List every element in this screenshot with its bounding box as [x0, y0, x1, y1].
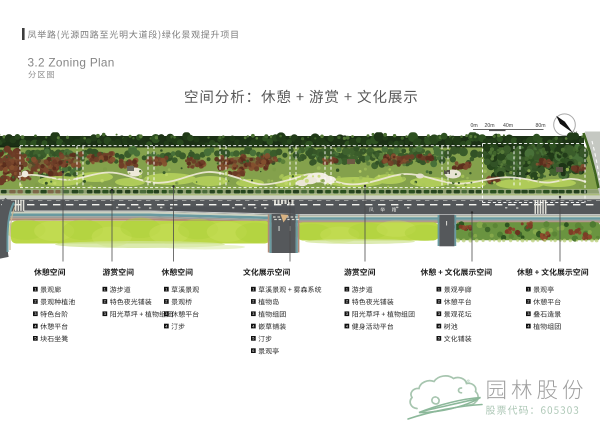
svg-text:3: 3 [346, 312, 348, 316]
svg-text:3: 3 [438, 312, 440, 316]
svg-text:2: 2 [438, 300, 440, 304]
svg-text:3: 3 [527, 312, 529, 316]
svg-text:3: 3 [252, 312, 254, 316]
svg-text:1: 1 [438, 287, 440, 291]
svg-text:3: 3 [165, 312, 167, 316]
svg-text:40m: 40m [503, 123, 513, 129]
svg-text:1: 1 [165, 287, 167, 291]
svg-text:20m: 20m [485, 123, 495, 129]
svg-text:1: 1 [34, 287, 36, 291]
svg-text:®: ® [467, 379, 471, 386]
svg-text:5: 5 [438, 337, 440, 341]
svg-text:2: 2 [104, 300, 106, 304]
svg-text:2: 2 [165, 300, 167, 304]
svg-text:4: 4 [34, 324, 36, 328]
svg-text:3: 3 [34, 312, 36, 316]
svg-text:3: 3 [104, 312, 106, 316]
svg-text:4: 4 [252, 324, 254, 328]
svg-text:2: 2 [346, 300, 348, 304]
svg-text:1: 1 [527, 287, 529, 291]
svg-text:4: 4 [527, 324, 529, 328]
svg-text:2: 2 [527, 300, 529, 304]
svg-text:4: 4 [165, 324, 167, 328]
svg-text:3.2 Zoning Plan: 3.2 Zoning Plan [28, 56, 115, 70]
svg-text:6: 6 [252, 349, 254, 353]
svg-text:80m: 80m [536, 123, 546, 129]
svg-text:5: 5 [252, 337, 254, 341]
svg-text:1: 1 [252, 287, 254, 291]
svg-text:2: 2 [252, 300, 254, 304]
svg-text:4: 4 [346, 324, 348, 328]
svg-text:1: 1 [104, 287, 106, 291]
svg-text:2: 2 [34, 300, 36, 304]
svg-text:4: 4 [438, 324, 440, 328]
svg-text:5: 5 [34, 337, 36, 341]
svg-text:0m: 0m [471, 123, 478, 129]
svg-text:1: 1 [346, 287, 348, 291]
